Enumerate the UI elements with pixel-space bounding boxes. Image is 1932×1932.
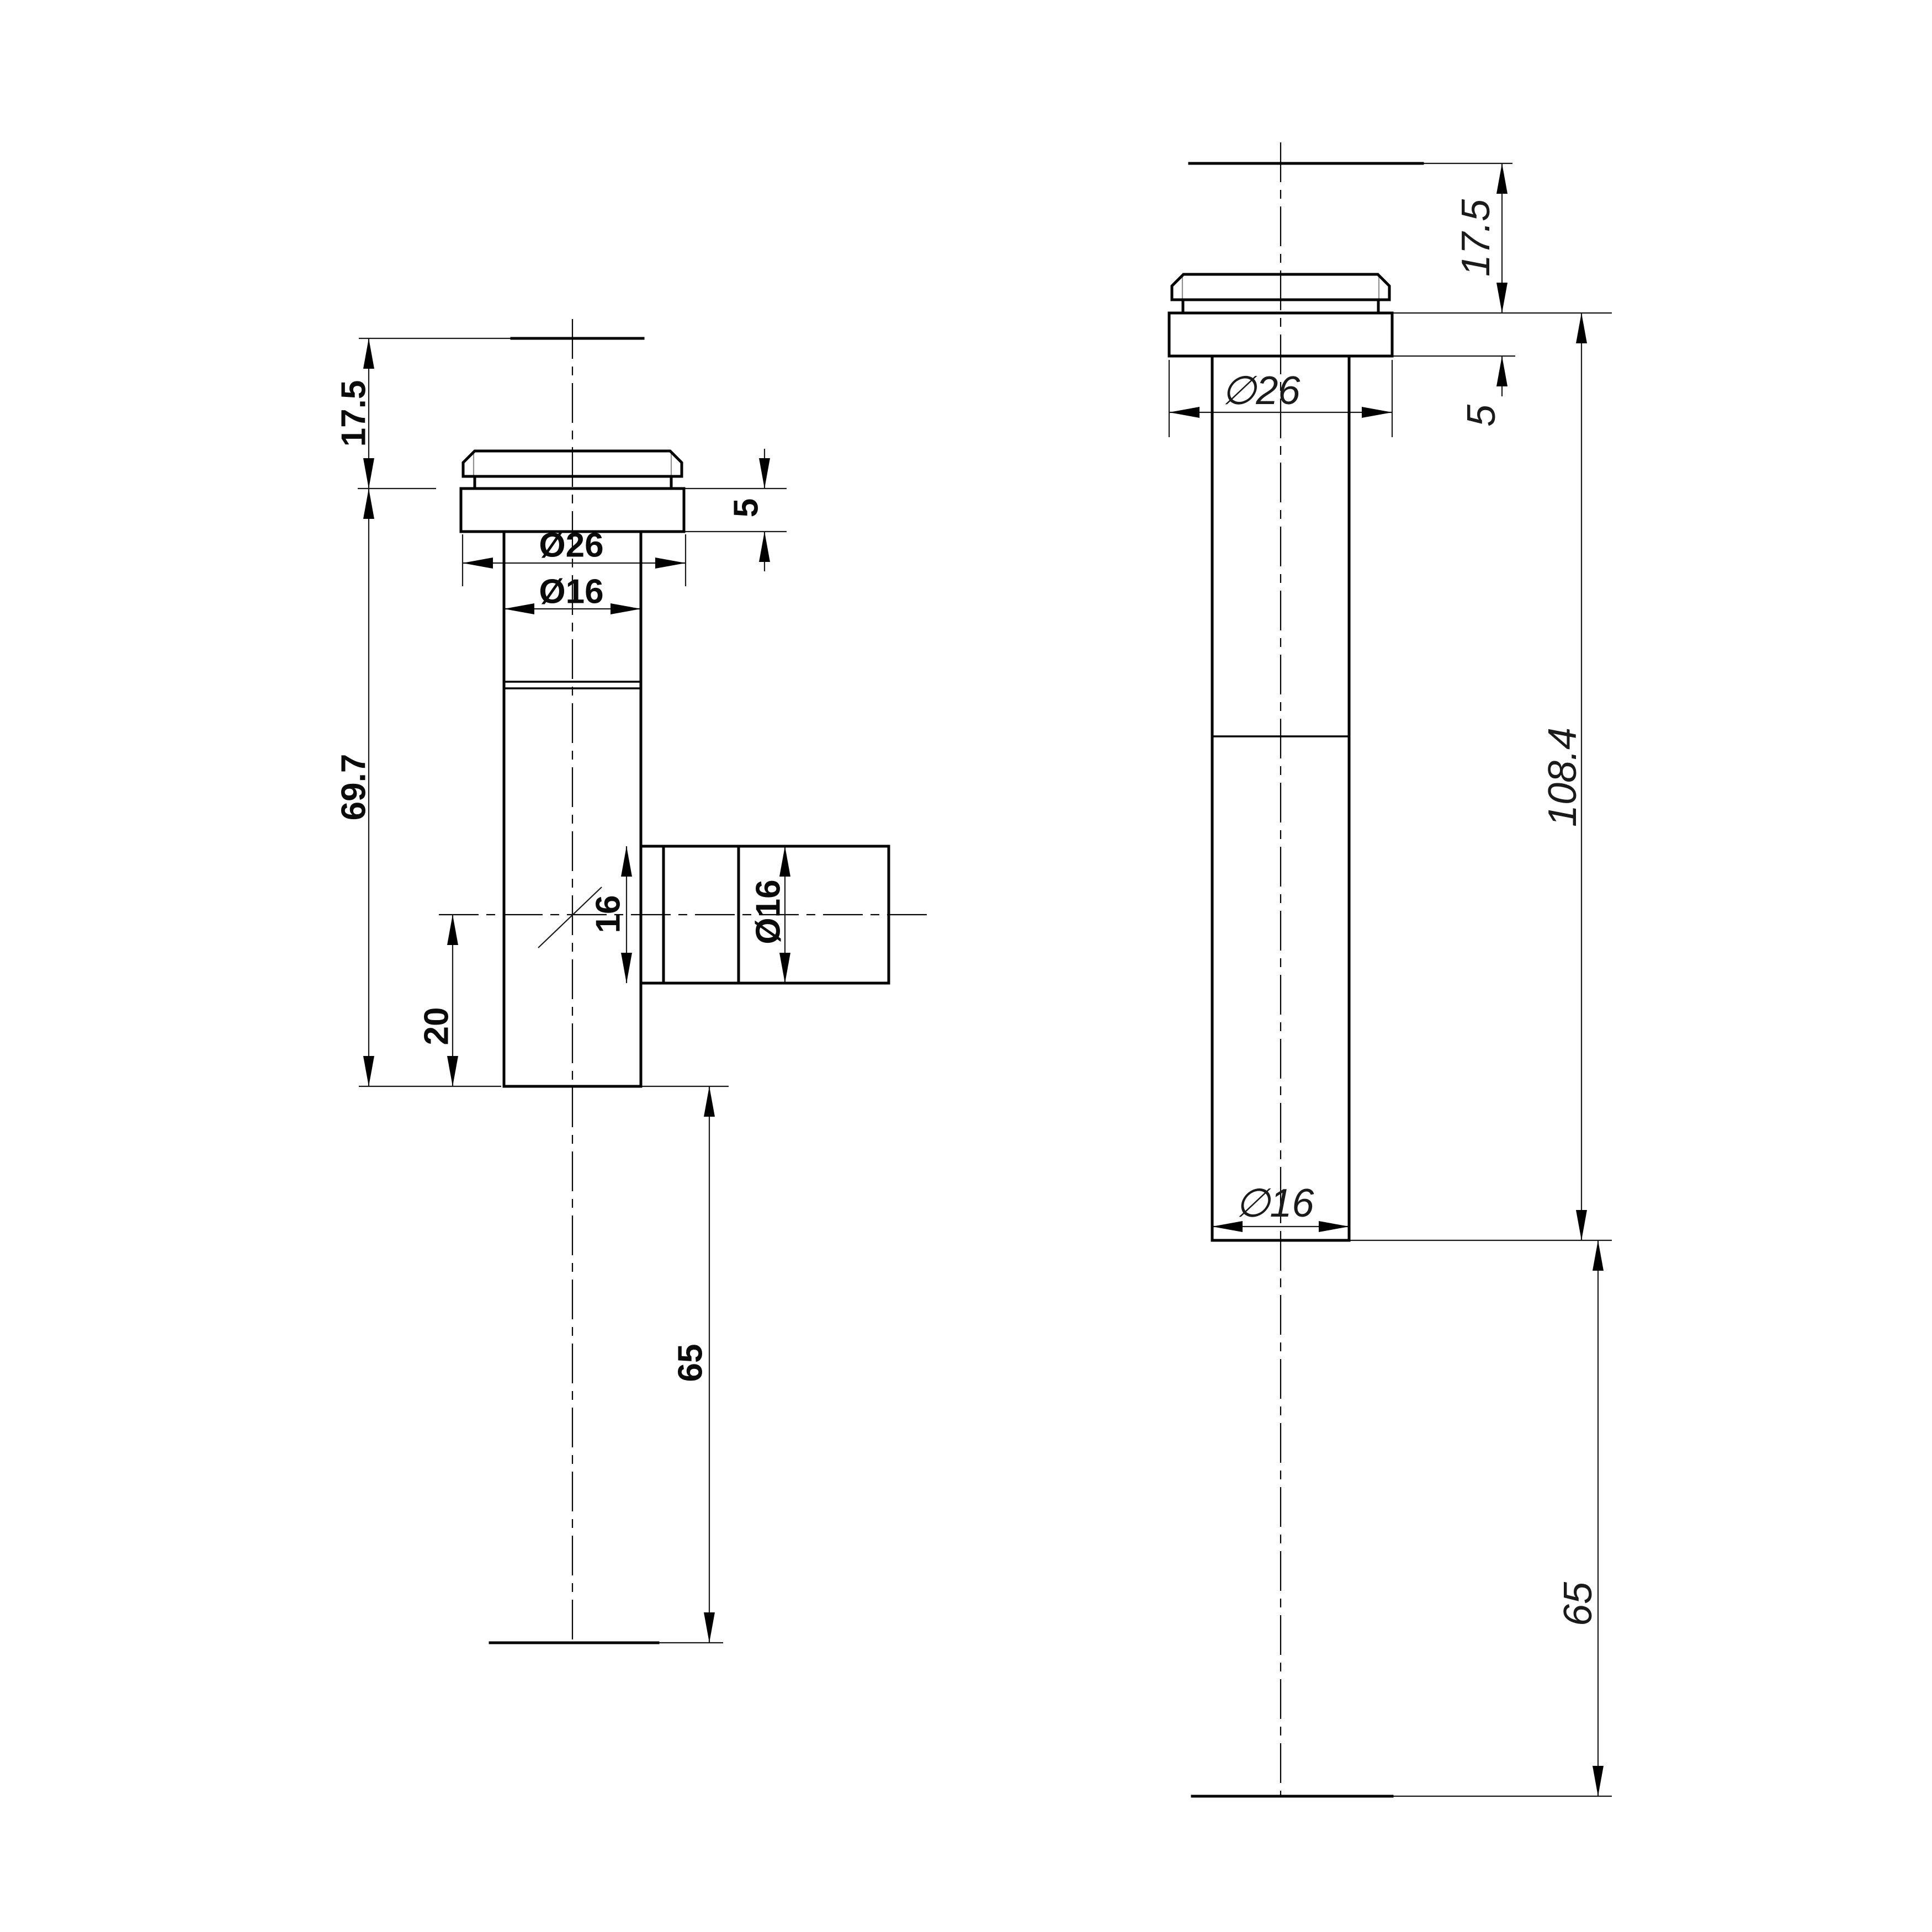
dimension-label: Ø16 xyxy=(539,573,603,611)
dimension-label: 17.5 xyxy=(1454,199,1498,277)
technical-drawing-canvas: 17.569.7Ø26Ø16516Ø16206517.55∅26∅16108.4… xyxy=(0,0,1932,1932)
dimension-label: Ø26 xyxy=(539,527,603,565)
dimension-label: 5 xyxy=(728,498,766,517)
dimension-label: 17.5 xyxy=(335,380,373,447)
dimension-label: 16 xyxy=(590,895,628,933)
dimension-label: 65 xyxy=(1556,1581,1600,1626)
dimension-label: ∅26 xyxy=(1222,369,1301,413)
dimension-label: 108.4 xyxy=(1541,728,1585,827)
dimension-label: 20 xyxy=(418,1007,456,1045)
dimension-label: 69.7 xyxy=(335,754,373,821)
drawing-sheet: 17.569.7Ø26Ø16516Ø16206517.55∅26∅16108.4… xyxy=(0,0,1932,1932)
dimension-label: 65 xyxy=(672,1344,710,1382)
dimension-label: 5 xyxy=(1459,404,1504,427)
dimension-label: ∅16 xyxy=(1235,1181,1315,1225)
dimension-label: Ø16 xyxy=(750,879,788,944)
sheet-background xyxy=(0,0,1932,1932)
